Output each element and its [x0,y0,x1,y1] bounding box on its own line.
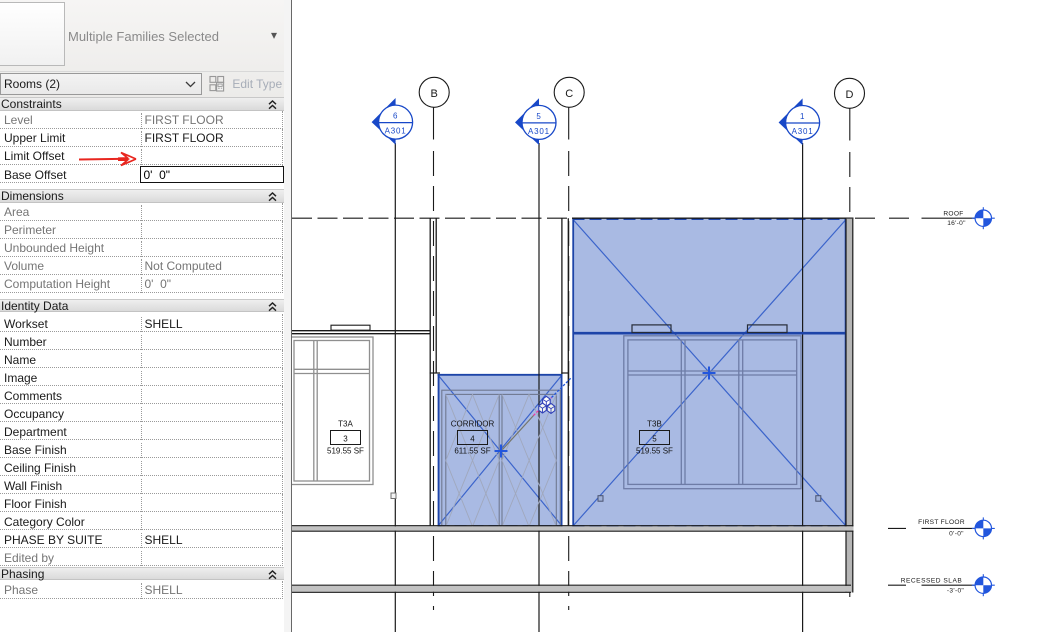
svg-text:519.55 SF: 519.55 SF [636,447,673,456]
svg-text:B: B [431,88,438,100]
svg-text:16'-0": 16'-0" [947,220,966,227]
svg-text:A301: A301 [528,127,550,136]
svg-text:FIRST FLOOR: FIRST FLOOR [918,519,965,526]
svg-text:A301: A301 [385,127,407,136]
svg-text:D: D [846,89,854,101]
svg-text:3: 3 [343,435,348,444]
svg-text:1: 1 [800,112,805,121]
svg-text:CORRIDOR: CORRIDOR [451,420,495,429]
svg-text:ROOF: ROOF [943,211,963,218]
svg-text:5: 5 [536,112,541,121]
svg-text:611.55 SF: 611.55 SF [454,447,490,456]
svg-text:6: 6 [393,112,398,121]
svg-text:RECESSED SLAB: RECESSED SLAB [901,578,963,585]
svg-text:C: C [565,88,573,100]
svg-text:5: 5 [652,435,657,444]
svg-text:4: 4 [470,435,475,444]
svg-text:A301: A301 [792,127,814,136]
svg-text:T3B: T3B [647,420,662,429]
svg-text:-3'-0": -3'-0" [947,588,964,595]
svg-text:T3A: T3A [338,420,353,429]
svg-text:0'-0": 0'-0" [949,531,964,538]
svg-text:519.55 SF: 519.55 SF [327,447,364,456]
